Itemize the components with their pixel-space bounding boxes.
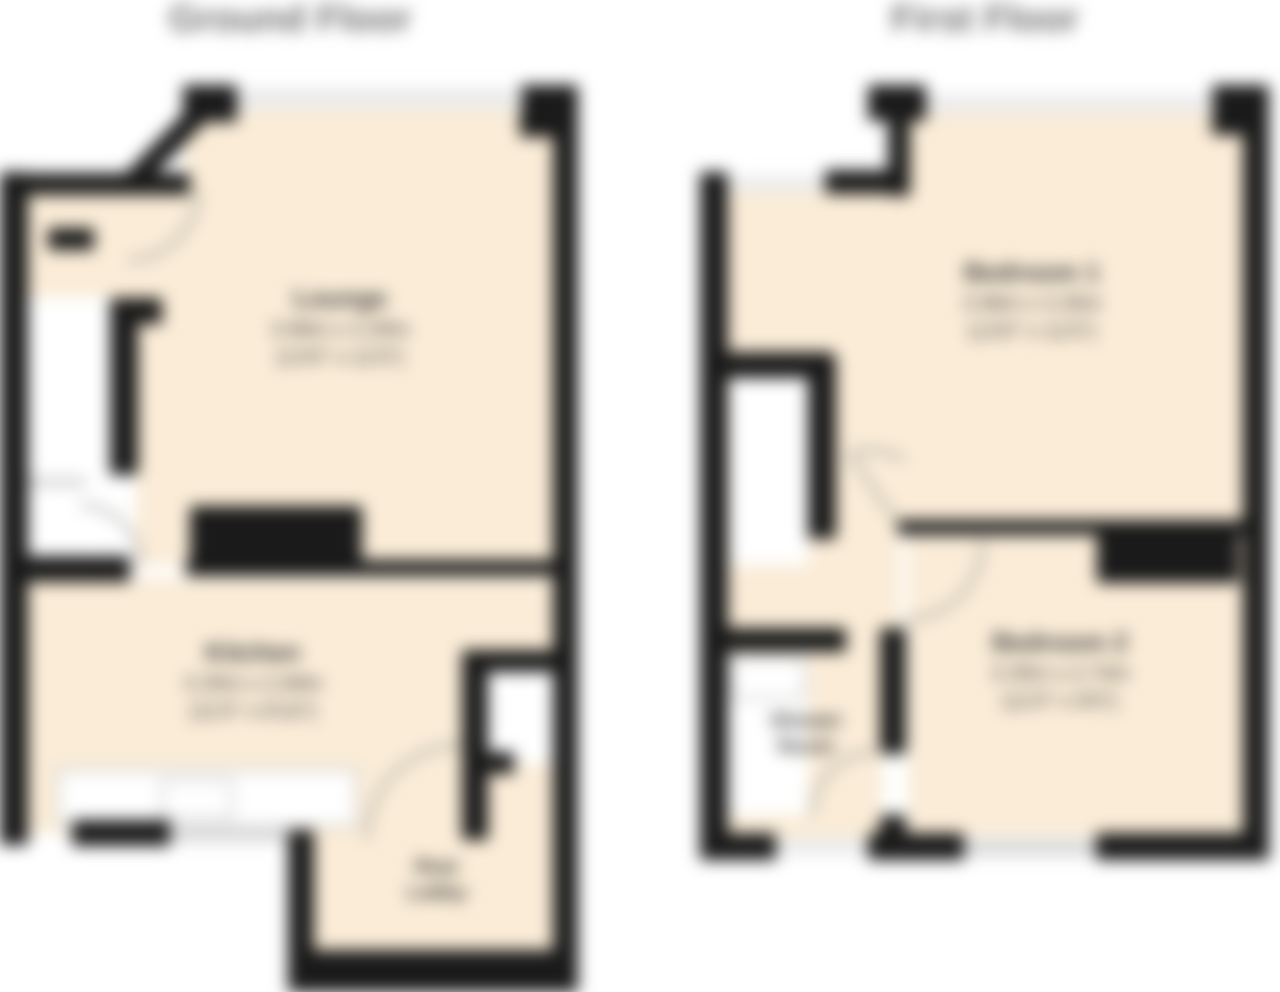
wall-segment <box>462 650 488 840</box>
lounge-window <box>237 88 522 110</box>
wall-segment <box>700 833 776 860</box>
wall-segment <box>553 85 578 992</box>
kitchen-sink <box>162 780 232 818</box>
lounge-dims-imperial: (13'0" x 11'0") <box>271 345 410 370</box>
bedroom1-window <box>925 95 1213 113</box>
lounge-name: Lounge <box>271 284 410 314</box>
wall-segment <box>288 950 578 992</box>
shower-tray <box>732 658 804 698</box>
kitchen-dims-metric: 3.35m x 2.69m <box>184 671 323 696</box>
floorplan-svg <box>0 0 1280 992</box>
bedroom1-side-window <box>734 176 825 191</box>
bedroom1-dims-imperial: (13'0" x 11'0") <box>963 319 1102 344</box>
front-door-leaf <box>48 228 94 250</box>
rear-lobby-line2: Lobby <box>407 880 467 906</box>
chimney-breast <box>190 506 362 564</box>
wall-segment <box>110 298 138 475</box>
wall-segment <box>1212 85 1268 135</box>
wall-segment <box>462 650 553 672</box>
kitchen-name: Kitchen <box>184 638 323 668</box>
chimney-breast <box>1097 533 1239 583</box>
wall-segment <box>808 357 836 539</box>
wall-segment <box>710 628 846 652</box>
kitchen-dims-imperial: (11'0" x 8'10") <box>184 699 323 724</box>
wall-segment <box>0 172 28 845</box>
bedroom2-dims-imperial: (11'0" x 9'0") <box>991 689 1130 714</box>
kitchen-window <box>170 824 290 842</box>
bedroom2-label: Bedroom 2 3.35m x 2.74m (11'0" x 9'0") <box>991 628 1130 714</box>
wall-segment <box>72 820 170 846</box>
floorplan-page: Ground Floor First Floor Lounge 3.96m x … <box>0 0 1280 992</box>
kitchen-label: Kitchen 3.35m x 2.69m (11'0" x 8'10") <box>184 638 323 724</box>
bedroom2-window <box>964 839 1098 856</box>
lounge-dims-metric: 3.96m x 3.35m <box>271 317 410 342</box>
wall-segment <box>898 520 1268 535</box>
shower-room-label: Shower Room <box>770 708 842 760</box>
wall-segment <box>28 173 190 195</box>
wall-segment <box>880 628 906 754</box>
shower-room-line1: Shower <box>770 708 842 734</box>
wall-segment <box>700 172 728 860</box>
wall-segment <box>110 298 162 324</box>
wall-segment <box>1243 85 1269 860</box>
rear-lobby-line1: Rear <box>407 854 467 880</box>
bedroom2-name: Bedroom 2 <box>991 628 1130 658</box>
bedroom1-name: Bedroom 1 <box>963 258 1102 288</box>
blurred-plan-layer: Ground Floor First Floor Lounge 3.96m x … <box>0 0 1280 992</box>
wall-segment <box>1096 833 1268 860</box>
shower-room-line2: Room <box>770 734 842 760</box>
rear-lobby-label: Rear Lobby <box>407 854 467 906</box>
wall-segment <box>868 833 964 860</box>
ground-floor-title: Ground Floor <box>169 0 412 40</box>
stairs-area <box>28 297 110 565</box>
bedroom2-dims-metric: 3.35m x 2.74m <box>991 661 1130 686</box>
pantry-door-leaf <box>488 752 514 774</box>
pantry-interior <box>488 672 553 764</box>
wall-segment <box>520 85 578 137</box>
first-floor-title: First Floor <box>891 0 1079 40</box>
stair-tread-line <box>28 478 86 486</box>
ground-floor-plan <box>0 85 578 992</box>
lounge-label: Lounge 3.96m x 3.35m (13'0" x 11'0") <box>271 284 410 370</box>
stairs-area <box>730 360 808 565</box>
wall-segment <box>0 556 130 582</box>
shower-room-window <box>776 838 870 855</box>
bedroom1-dims-metric: 3.96m x 3.35m <box>963 291 1102 316</box>
bedroom1-label: Bedroom 1 3.96m x 3.35m (13'0" x 11'0") <box>963 258 1102 344</box>
wall-segment <box>825 170 903 194</box>
